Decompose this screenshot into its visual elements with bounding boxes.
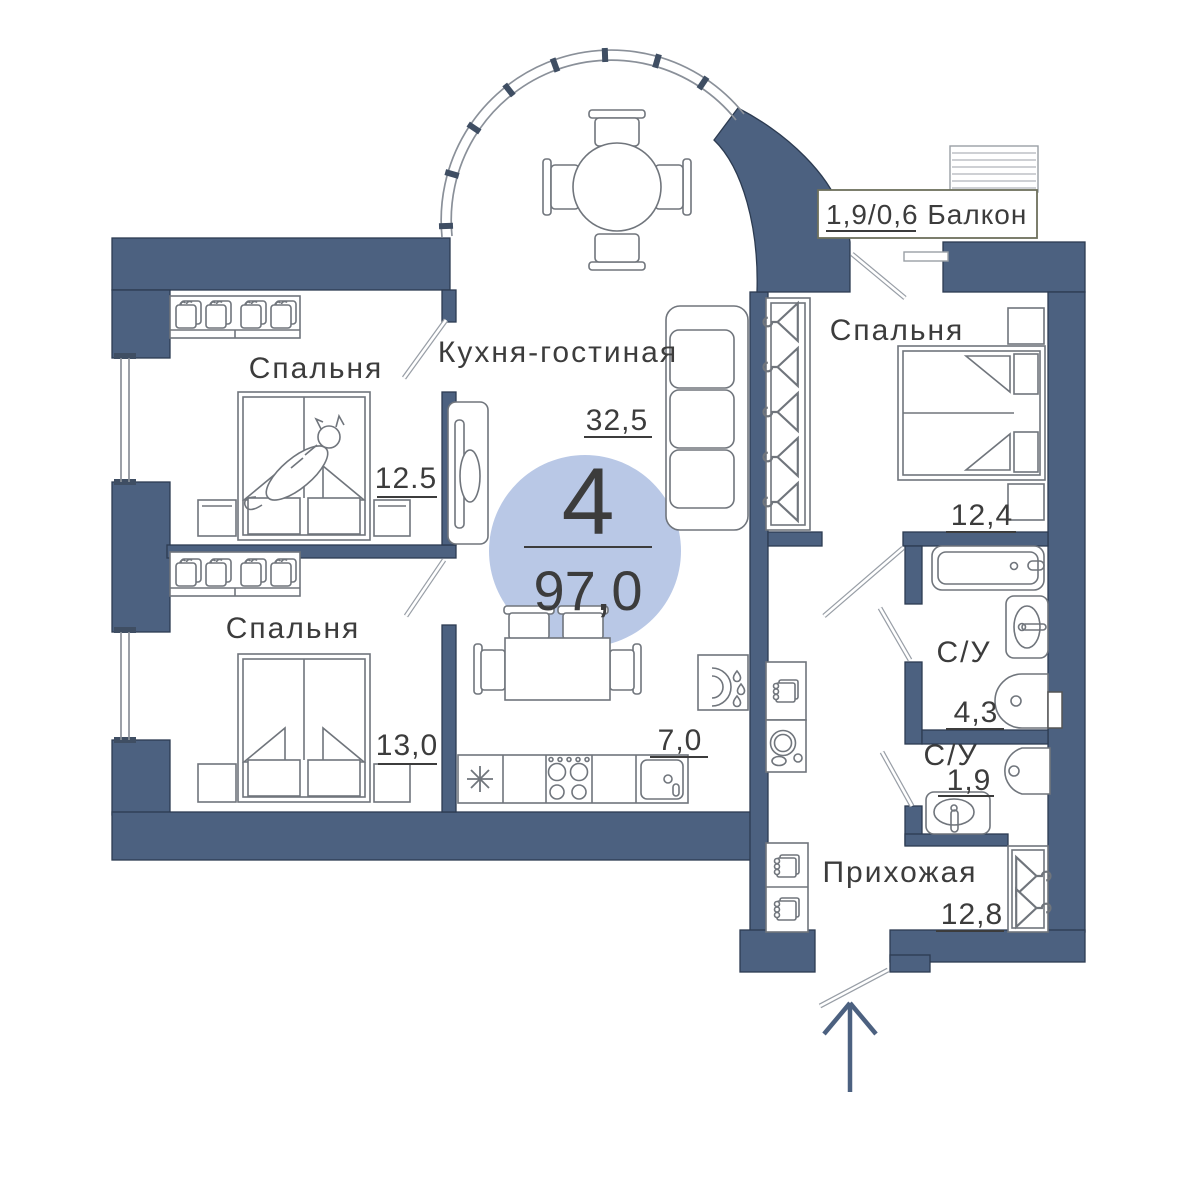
hallway-name: Прихожая [822,856,977,889]
bedroom-bottom-left-furniture [170,552,410,802]
bedroom-bottom-left-area: 13,0 [376,729,438,762]
chair [595,234,639,262]
wall-segment [442,625,456,812]
bathroom-large-area: 4,3 [954,696,999,729]
bedroom-top-left-furniture [170,296,410,540]
nightstand [1008,308,1044,344]
toilet-icon [995,674,1048,728]
clothes-icon [176,301,201,328]
wall-segment [905,546,922,604]
pillow [308,498,360,534]
toilet-icon [1005,748,1050,794]
shelf-icon [775,898,800,920]
washing-machine-icon [766,720,806,772]
pillow [248,498,300,534]
wardrobe [170,296,300,338]
floor-plan-svg: Спальня 12.5 Спальня 13,0 Кухня-гостиная… [0,0,1201,1200]
nightstand [374,764,410,802]
bathtub-icon [932,546,1044,590]
shelf-icon [775,855,800,877]
door-swing [882,752,912,806]
bedroom-top-left-area: 12.5 [375,462,437,495]
square-table [505,638,610,700]
wall-segment [905,834,1008,846]
sofa-cushion [670,330,734,388]
clothes-icon [206,301,231,328]
bedroom-bottom-left-name: Спальня [226,612,361,645]
pillow [248,760,300,796]
kitchen-living-area: 32,5 [586,404,648,437]
chair [610,650,634,690]
clothes-icon [241,559,266,586]
bedroom-right-area: 12,4 [951,499,1013,532]
nightstand [198,764,236,802]
pillow [308,760,360,796]
wall-segment [768,532,822,546]
wall-segment [1048,292,1085,932]
sofa [666,306,748,530]
wall-segment [112,238,450,290]
kitchen-counter [458,755,688,803]
bedroom-right-name: Спальня [830,314,965,347]
shelf-icon [774,680,799,702]
tv-unit [448,402,488,544]
wardrobe [170,552,300,596]
balcony-railing [950,146,1038,192]
double-bed [238,392,370,540]
clothes-icon [241,301,266,328]
boiler-cabinet [698,655,748,710]
door-swing [880,608,910,660]
round-table [573,143,661,231]
double-bed [898,346,1045,480]
pillow [1014,432,1038,472]
double-bed [238,654,370,802]
entrance-door-swing [820,970,888,1006]
utility-niche [766,662,808,932]
door-swing [852,254,905,298]
wall-segment [112,482,170,632]
door-swing [406,560,444,616]
round-dining-set [543,110,691,270]
hallway-wardrobe [1008,846,1050,932]
clothes-icon [271,559,296,586]
clothes-icon [176,559,201,586]
clothes-icon [206,559,231,586]
bathroom-large-name: С/У [936,636,991,669]
balcony-label: 1,9/0,6 Балкон [826,199,1027,230]
wall-segment [740,930,815,972]
sink-icon [926,792,990,834]
wardrobe [764,298,810,530]
kitchen-zone-area: 7,0 [658,724,703,757]
chair [481,650,505,690]
badge-rooms-count: 4 [562,449,615,555]
wall-segment [112,290,170,358]
sofa-cushion [670,450,734,508]
balcony-door-sill [904,252,948,261]
wall-segment [903,532,1048,546]
clothes-icon [271,301,296,328]
badge-total-area: 97,0 [534,559,643,622]
kitchen-living-name: Кухня-гостиная [438,336,678,369]
wall-segment [943,242,1085,292]
bedroom-top-left-name: Спальня [249,352,384,385]
bathroom-small-area: 1,9 [947,764,992,797]
nightstand [1008,484,1044,520]
sink-icon [1006,596,1048,658]
floor-plan-page: Спальня 12.5 Спальня 13,0 Кухня-гостиная… [0,0,1201,1200]
wall-segment [442,290,456,322]
pillow [1014,354,1038,394]
door-swing [824,548,903,616]
wall-segment [112,812,766,860]
hall-shelf-cabinet [766,843,808,932]
sofa-cushion [670,390,734,448]
chair [595,118,639,146]
toilet-tank [1048,692,1062,728]
wall-segment [905,662,922,744]
wall-segment [112,740,170,815]
entrance-arrow [824,1003,876,1092]
hallway-area: 12,8 [941,898,1003,931]
wall-segment [890,955,930,972]
